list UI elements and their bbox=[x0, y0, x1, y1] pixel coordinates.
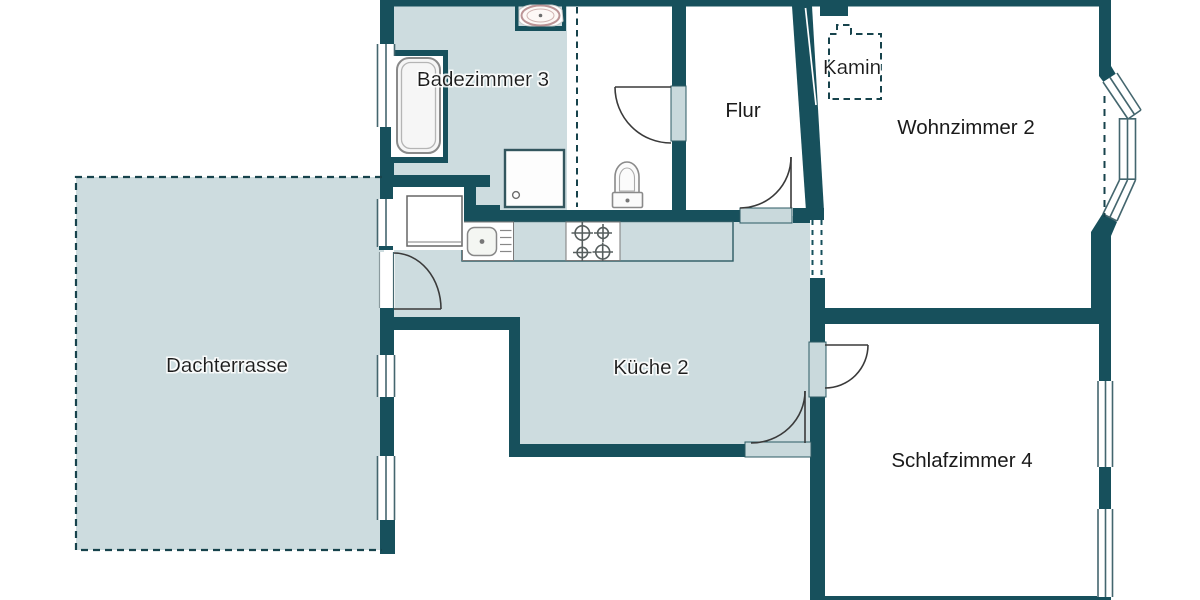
svg-text:Schlafzimmer 4: Schlafzimmer 4 bbox=[891, 449, 1032, 472]
svg-text:Kamin: Kamin bbox=[823, 56, 881, 79]
svg-text:Badezimmer 3: Badezimmer 3 bbox=[417, 68, 549, 91]
svg-text:Flur: Flur bbox=[725, 99, 760, 122]
svg-text:Dachterrasse: Dachterrasse bbox=[166, 354, 288, 377]
svg-text:Wohnzimmer 2: Wohnzimmer 2 bbox=[897, 116, 1034, 139]
svg-text:Küche 2: Küche 2 bbox=[613, 356, 688, 379]
